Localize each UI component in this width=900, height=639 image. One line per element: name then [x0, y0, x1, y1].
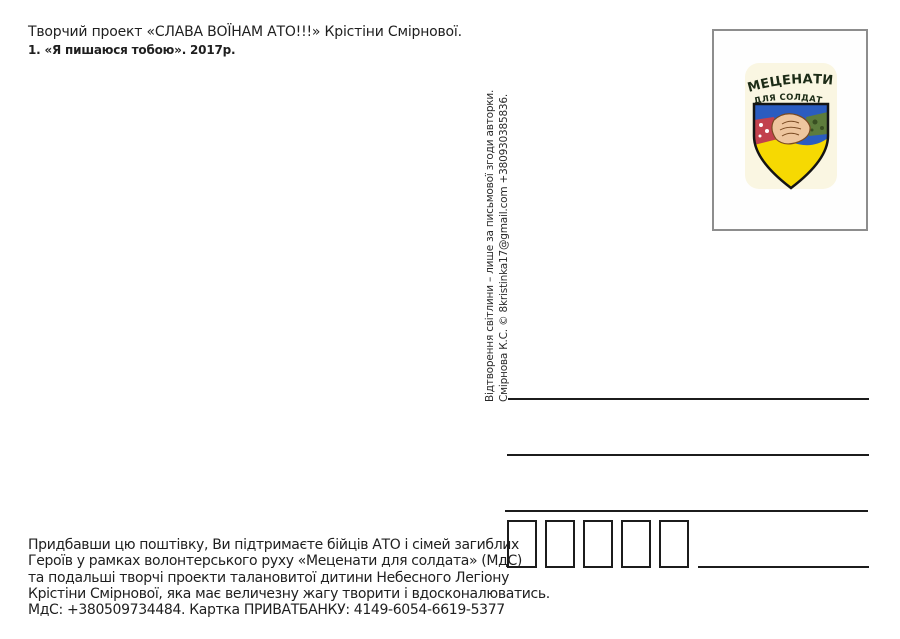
camo-spot — [820, 126, 824, 130]
handshake-hands — [772, 114, 810, 144]
camo-spot — [811, 129, 814, 132]
mecenaty-dlya-soldata-emblem: МЕЦЕНАТИ ДЛЯ СОЛДАТА — [744, 62, 838, 190]
postcard-header: Творчий проект «СЛАВА ВОЇНАМ АТО!!!» Крі… — [28, 24, 462, 57]
support-text: Придбавши цю поштівку, Ви підтримаєте бі… — [28, 537, 550, 618]
embroidery-dot — [765, 129, 769, 133]
embroidery-dot — [759, 135, 762, 138]
postal-code-box — [583, 520, 613, 568]
contact-and-bank-line: МдС: +380509734484. Картка ПРИВАТБАНКУ: … — [28, 602, 550, 618]
address-line-2 — [507, 454, 869, 456]
camo-spot — [813, 120, 818, 125]
address-line-1 — [508, 398, 869, 400]
support-text-line: Героїв у рамках волонтерського руху «Мец… — [28, 553, 550, 569]
support-text-line: Крістіни Смірнової, яка має величезну жа… — [28, 586, 550, 602]
copyright-line-2: Смірнова К.С. © 8kristinka17@gmail.com +… — [498, 90, 512, 402]
artwork-title: 1. «Я пишаюся тобою». 2017р. — [28, 43, 462, 57]
support-text-line: Придбавши цю поштівку, Ви підтримаєте бі… — [28, 537, 550, 553]
project-title: Творчий проект «СЛАВА ВОЇНАМ АТО!!!» Крі… — [28, 24, 462, 40]
embroidery-dot — [759, 123, 763, 127]
address-line-4 — [698, 566, 869, 568]
postcard-back: Творчий проект «СЛАВА ВОЇНАМ АТО!!!» Крі… — [0, 0, 900, 639]
postal-code-box — [659, 520, 689, 568]
copyright-line-1: Відтворення світлини – лише за письмової… — [484, 90, 498, 402]
address-line-3 — [505, 510, 868, 512]
support-text-line: та подальші творчі проекти талановитої д… — [28, 570, 550, 586]
copyright-notice: Відтворення світлини – лише за письмової… — [484, 90, 511, 402]
postal-code-box — [621, 520, 651, 568]
